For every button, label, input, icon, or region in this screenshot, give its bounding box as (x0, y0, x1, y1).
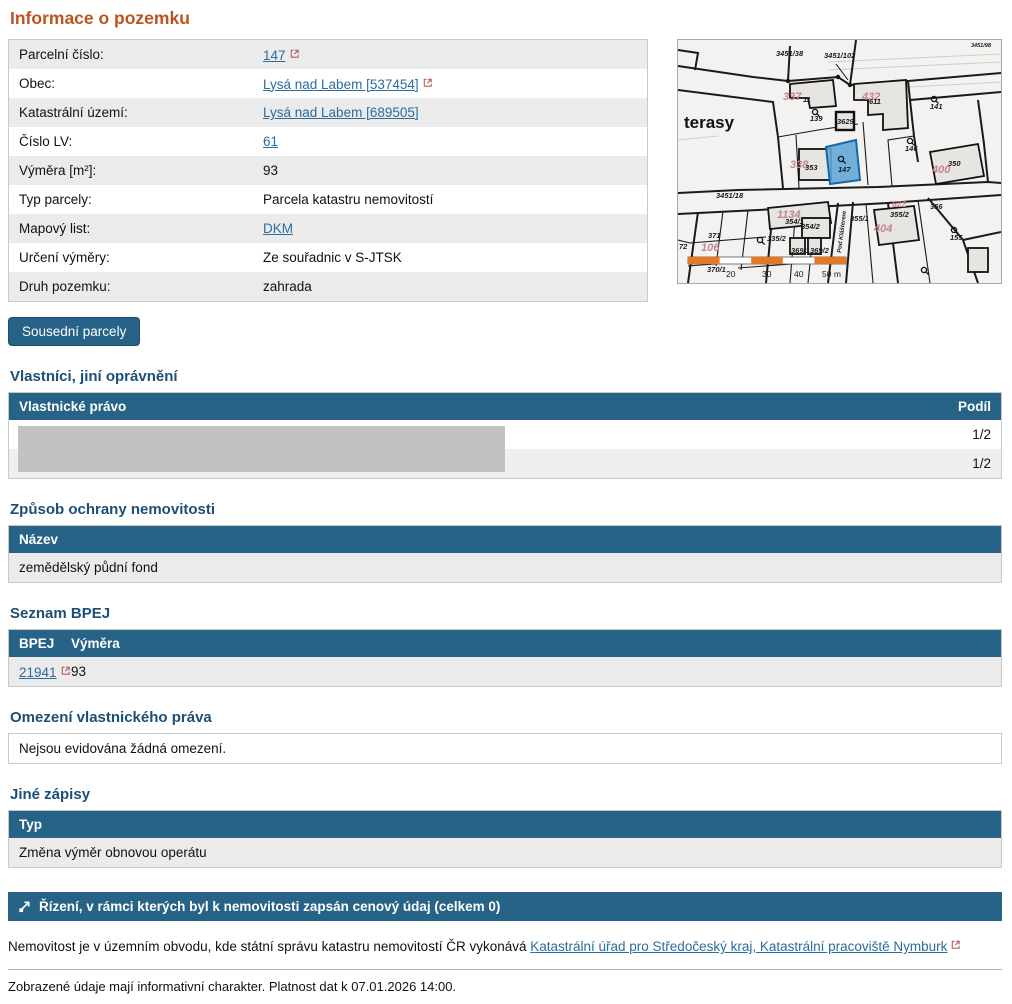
svg-text:terasy: terasy (684, 113, 735, 132)
svg-text:355/2: 355/2 (890, 210, 910, 219)
protection-heading: Způsob ochrany nemovitosti (10, 501, 1002, 518)
svg-text:50 m: 50 m (822, 269, 841, 279)
other-record-row: Změna výměr obnovou operátu (9, 838, 1001, 867)
other-record-value: Změna výměr obnovou operátu (19, 845, 207, 860)
svg-text:369/2: 369/2 (810, 246, 830, 255)
svg-text:353: 353 (805, 163, 818, 172)
validity-disclaimer: Zobrazené údaje mají informativní charak… (8, 979, 1002, 994)
bpej-code-link[interactable]: 21941 (19, 665, 57, 680)
svg-text:3451/38: 3451/38 (776, 49, 804, 58)
svg-text:371: 371 (708, 231, 721, 240)
row-value: Ze souřadnic v S-JTSK (259, 245, 406, 270)
svg-text:350: 350 (948, 159, 961, 168)
owners-table-body: 1/2 1/2 (9, 420, 1001, 478)
cadastral-area-link[interactable]: Lysá nad Labem [689505] (263, 105, 419, 120)
row-label: Katastrální území: (9, 100, 259, 125)
table-row: Určení výměry: Ze souřadnic v S-JTSK (9, 243, 647, 272)
table-row: Typ parcely: Parcela katastru nemovitost… (9, 185, 647, 214)
row-value: 93 (259, 158, 282, 183)
other-records-table-header: Typ (9, 811, 1001, 838)
col-area: Výměra (71, 636, 120, 651)
svg-text:141: 141 (930, 102, 943, 111)
owner-share: 1/2 (972, 456, 991, 471)
bpej-table: BPEJ Výměra 21941 93 (8, 629, 1002, 687)
bpej-heading: Seznam BPEJ (10, 605, 1002, 622)
table-row: Výměra [m²]: 93 (9, 156, 647, 185)
row-label: Číslo LV: (9, 129, 259, 154)
redacted-owner-names (18, 426, 505, 472)
svg-text:611: 611 (869, 97, 881, 106)
protection-value: zemědělský půdní fond (19, 560, 158, 575)
svg-text:3629: 3629 (837, 117, 855, 126)
table-row: Mapový list: DKM (9, 214, 647, 243)
svg-text:147: 147 (838, 165, 851, 174)
svg-text:370/1: 370/1 (707, 265, 726, 274)
svg-text:72: 72 (679, 242, 688, 251)
municipality-link[interactable]: Lysá nad Labem [537454] (263, 77, 419, 92)
table-row: Číslo LV: 61 (9, 127, 647, 156)
table-row: Katastrální území: Lysá nad Labem [68950… (9, 98, 647, 127)
protection-row: zemědělský půdní fond (9, 553, 1001, 582)
table-row: Druh pozemku: zahrada (9, 272, 647, 301)
parcel-info-page: Informace o pozemku Parcelní číslo: 147 … (0, 0, 1012, 1004)
svg-text:622: 622 (892, 199, 906, 209)
row-value: Parcela katastru nemovitostí (259, 187, 437, 212)
svg-text:139: 139 (810, 114, 823, 123)
row-label: Výměra [m²]: (9, 158, 259, 183)
svg-text:356: 356 (930, 202, 943, 211)
svg-text:404: 404 (873, 223, 892, 235)
table-row: Obec: Lysá nad Labem [537454] (9, 69, 647, 98)
lv-number-link[interactable]: 61 (263, 134, 278, 149)
parcel-attributes-table: Parcelní číslo: 147 Obec: Lysá nad Labem… (8, 39, 648, 302)
svg-text:40: 40 (794, 269, 804, 279)
svg-text:11: 11 (803, 95, 811, 104)
svg-text:146: 146 (905, 144, 918, 153)
svg-text:3451/18: 3451/18 (716, 191, 744, 200)
protection-table: Název zemědělský půdní fond (8, 525, 1002, 583)
svg-text:135/2: 135/2 (767, 234, 787, 243)
svg-text:30: 30 (762, 269, 772, 279)
svg-text:3451/102: 3451/102 (824, 51, 856, 60)
row-label: Mapový list: (9, 216, 259, 241)
col-name: Název (19, 532, 58, 547)
restrictions-box: Nejsou evidována žádná omezení. (8, 733, 1002, 764)
neighbor-parcels-button[interactable]: Sousední parcely (8, 317, 140, 346)
cadastral-map: 3451/383451/1023451/98terasy337111393629… (678, 40, 1001, 283)
row-value: zahrada (259, 274, 316, 299)
jurisdiction-prefix: Nemovitost je v územním obvodu, kde stát… (8, 939, 530, 954)
proceedings-expander[interactable]: Řízení, v rámci kterých byl k nemovitost… (8, 892, 1002, 921)
external-link-icon (950, 936, 961, 956)
jurisdiction-text: Nemovitost je v územním obvodu, kde stát… (8, 936, 1002, 957)
cadastral-office-link[interactable]: Katastrální úřad pro Středočeský kraj, K… (530, 939, 947, 954)
svg-text:369/1: 369/1 (791, 246, 810, 255)
external-link-icon (60, 664, 71, 679)
parcel-number-link[interactable]: 147 (263, 48, 286, 63)
owners-table-header: Vlastnické právo Podíl (9, 393, 1001, 420)
expand-arrows-icon (18, 900, 31, 913)
row-label: Určení výměry: (9, 245, 259, 270)
col-type: Typ (19, 817, 42, 832)
row-label: Obec: (9, 71, 259, 96)
restrictions-heading: Omezení vlastnického práva (10, 709, 1002, 726)
bpej-table-header: BPEJ Výměra (9, 630, 1001, 657)
svg-text:3451/98: 3451/98 (971, 43, 992, 49)
map-scale-bar (688, 257, 846, 264)
col-share: Podíl (958, 399, 991, 414)
col-bpej: BPEJ (19, 636, 71, 651)
page-title: Informace o pozemku (10, 8, 1002, 29)
owners-heading: Vlastníci, jiní oprávnění (10, 368, 1002, 385)
other-records-heading: Jiné zápisy (10, 786, 1002, 803)
bpej-area-value: 93 (71, 664, 86, 679)
proceedings-label: Řízení, v rámci kterých byl k nemovitost… (39, 899, 500, 914)
cadastral-map-thumbnail[interactable]: 3451/383451/1023451/98terasy337111393629… (677, 39, 1002, 284)
svg-text:20: 20 (726, 269, 736, 279)
top-section: Parcelní číslo: 147 Obec: Lysá nad Labem… (8, 39, 1002, 302)
svg-text:106: 106 (701, 242, 720, 254)
svg-text:355/1: 355/1 (850, 214, 869, 223)
svg-text:155: 155 (950, 233, 963, 242)
row-label: Parcelní číslo: (9, 42, 259, 67)
table-row: Parcelní číslo: 147 (9, 40, 647, 69)
svg-text:337: 337 (783, 91, 802, 103)
owners-table: Vlastnické právo Podíl 1/2 1/2 (8, 392, 1002, 479)
protection-table-header: Název (9, 526, 1001, 553)
row-label: Druh pozemku: (9, 274, 259, 299)
owner-share: 1/2 (972, 427, 991, 442)
highlighted-parcel-147 (826, 140, 860, 184)
row-label: Typ parcely: (9, 187, 259, 212)
external-link-icon (422, 76, 433, 91)
col-ownership-right: Vlastnické právo (19, 399, 126, 414)
other-records-table: Typ Změna výměr obnovou operátu (8, 810, 1002, 868)
svg-text:354/2: 354/2 (801, 222, 821, 231)
map-sheet-link[interactable]: DKM (263, 221, 293, 236)
external-link-icon (289, 47, 300, 62)
footer-divider (8, 969, 1002, 970)
bpej-row: 21941 93 (9, 657, 1001, 686)
